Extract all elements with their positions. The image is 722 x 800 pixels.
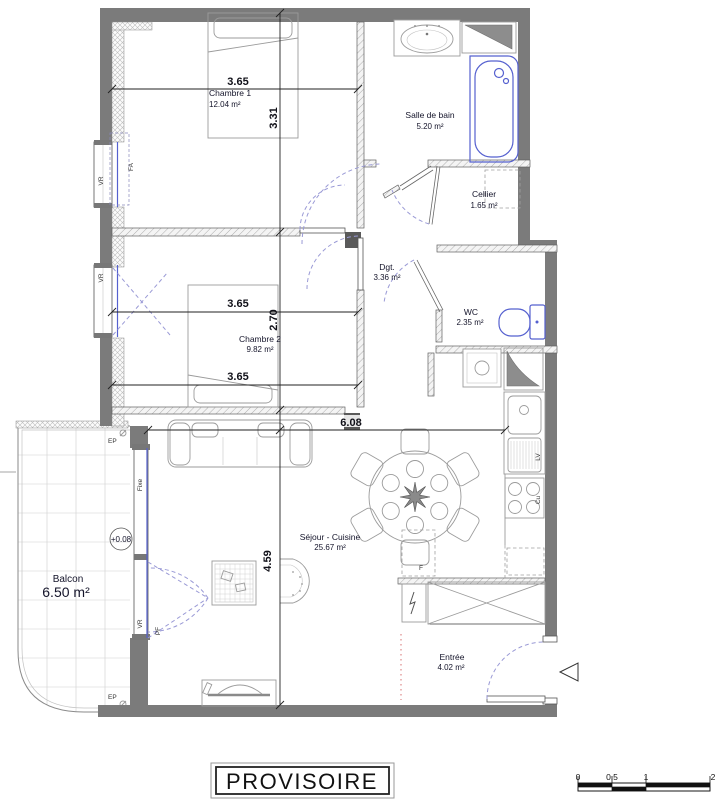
armchair-icon <box>280 559 309 603</box>
balcon-area: 6.50 m² <box>42 584 90 600</box>
fa-window-outline <box>110 133 129 205</box>
degagement-area: 3.36 m² <box>373 273 400 282</box>
scale-tick-0: 0 <box>576 772 581 782</box>
electrical-cabinet-icon <box>402 584 426 622</box>
appliance-outline <box>507 548 544 575</box>
pf-label: PF <box>155 627 162 635</box>
tv-console-icon <box>202 680 276 706</box>
cu-label: Cu <box>535 495 542 504</box>
wc-label: WC <box>464 307 478 317</box>
banner-text: PROVISOIRE <box>226 769 378 794</box>
degagement-label: Dgt. <box>379 262 395 272</box>
scale-tick-2: 2 <box>711 772 716 782</box>
dim-sejour-depth: 4.59 <box>262 550 274 571</box>
dining-table-icon <box>349 429 481 565</box>
sofa-icon <box>168 420 312 467</box>
scale-tick-1: 1 <box>644 772 649 782</box>
balcony <box>0 421 132 712</box>
centerpiece-icon <box>400 482 430 512</box>
vr-label: VR <box>98 176 105 185</box>
chambre1-label: Chambre 1 <box>209 88 251 98</box>
bedroom-furniture <box>188 13 298 407</box>
vr-label: VR <box>98 273 105 282</box>
dim-sejour-width: 6.08 <box>340 417 361 429</box>
chambre2-label: Chambre 2 <box>239 334 281 344</box>
chambre1-area: 12.04 m² <box>209 100 241 109</box>
kitchen-fixtures <box>402 392 545 578</box>
wall-labels: VR FA VR Fixe VR PF EP EP LV Cu F <box>98 162 542 701</box>
dim-chambre2-width-bottom: 3.65 <box>227 371 248 383</box>
cellier-area: 1.65 m² <box>470 201 497 210</box>
entree-area: 4.02 m² <box>437 663 464 672</box>
dimension-labels: 3.65 3.31 3.65 2.70 3.65 6.08 4.59 <box>227 76 361 572</box>
bathtub-icon <box>470 56 518 162</box>
balcon-level: +0.08 <box>111 535 132 544</box>
sejour-cuisine-area: 25.67 m² <box>314 543 346 552</box>
floor-plan-page: Chambre 1 12.04 m² Salle de bain 5.20 m²… <box>0 0 722 800</box>
lightning-icon <box>410 592 415 614</box>
cellier-label: Cellier <box>472 189 496 199</box>
wc-area: 2.35 m² <box>456 318 483 327</box>
corner-sink-icon <box>463 349 501 387</box>
vr-label: VR <box>137 619 144 628</box>
entree-label: Entrée <box>439 652 464 662</box>
scale-bar: 0 0.5 1 2 <box>576 772 716 791</box>
lv-label: LV <box>535 453 542 461</box>
entry-arrow-icon <box>560 663 578 681</box>
ep-label: EP <box>108 694 117 701</box>
chambre2-area: 9.82 m² <box>246 345 273 354</box>
bed-icon <box>208 13 298 138</box>
dim-chambre1-depth: 3.31 <box>268 107 280 128</box>
fridge-label: F <box>419 565 423 572</box>
salle-de-bain-area: 5.20 m² <box>416 122 443 131</box>
ep-label: EP <box>108 438 117 445</box>
scale-tick-05: 0.5 <box>606 772 618 782</box>
sejour-cuisine-label: Séjour - Cuisine <box>300 532 361 542</box>
dim-chambre1-width: 3.65 <box>227 76 248 88</box>
provisional-banner: PROVISOIRE <box>211 763 394 798</box>
floor-plan-drawing: Chambre 1 12.04 m² Salle de bain 5.20 m²… <box>0 0 722 800</box>
fa-label: FA <box>128 162 135 171</box>
bathroom-fixtures <box>394 20 518 162</box>
coffee-table-icon <box>212 561 256 605</box>
window-balcony <box>134 448 148 638</box>
fixe-label: Fixe <box>137 478 144 491</box>
salle-de-bain-label: Salle de bain <box>405 110 454 120</box>
dim-chambre2-width-top: 3.65 <box>227 298 248 310</box>
dim-chambre2-depth: 2.70 <box>268 309 280 330</box>
